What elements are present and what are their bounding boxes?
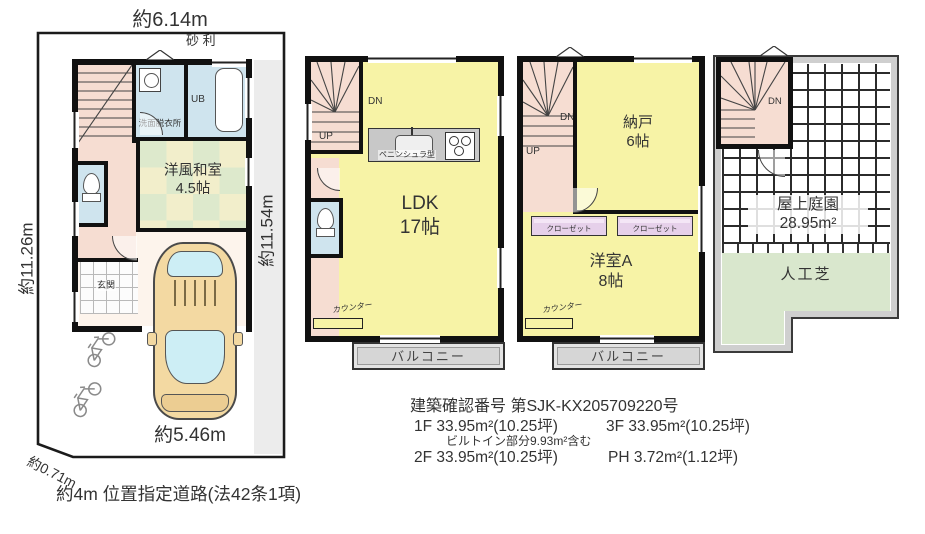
turf-ext — [722, 311, 784, 344]
wall — [339, 198, 343, 258]
tatami-label: 洋風和室 4.5帖 — [140, 162, 246, 198]
stairs-1f-icon — [78, 65, 132, 143]
turf-label: 人工芝 — [756, 266, 856, 285]
dim-left: 約11.26m — [16, 214, 37, 304]
confirmation-number: 建築確認番号 第SJK-KX205709220号 — [410, 397, 679, 417]
roof-garden-name: 屋上庭園 — [748, 195, 868, 214]
ldk-label: LDK 17帖 — [370, 192, 470, 240]
dim-top: 約6.14m — [100, 8, 240, 33]
closet-left-label: クローゼット — [531, 224, 607, 233]
kitchen-type-label: ペニンシュラ型 — [378, 150, 436, 160]
ldk-name: LDK — [370, 192, 470, 216]
room-a-label: 洋室A 8帖 — [561, 252, 661, 292]
burner-icon — [461, 136, 471, 146]
gravel-label: 砂 利 — [186, 33, 216, 49]
toilet-tank-icon — [316, 228, 335, 237]
window — [71, 292, 79, 322]
car-windshield — [165, 330, 225, 384]
closet-shelf — [534, 219, 604, 223]
car-mirror-right-icon — [233, 332, 243, 346]
kitchen-stove-icon — [445, 132, 475, 160]
window — [71, 112, 79, 148]
area-ph: PH 3.72m²(1.12坪) — [608, 448, 738, 467]
car-mirror-left-icon — [147, 332, 157, 346]
storage-label: 納戸 6帖 — [577, 114, 699, 152]
dim-right: 約11.54m — [256, 186, 277, 276]
window — [698, 186, 706, 252]
toilet-tank-icon — [82, 193, 101, 202]
room-a-name: 洋室A — [561, 252, 661, 272]
car — [153, 242, 237, 420]
wall — [311, 254, 343, 258]
window — [368, 55, 456, 63]
road-label: 約4m 位置指定道路(法42条1項) — [56, 484, 301, 506]
stair-room-3f — [523, 62, 573, 158]
counter-strip-2f — [313, 318, 363, 329]
wall — [78, 223, 108, 227]
washer-drum-icon — [144, 73, 159, 88]
window — [634, 55, 692, 63]
builtin-note: ビルトイン部分9.93m²含む — [446, 434, 591, 449]
washer-icon — [139, 68, 161, 92]
balcony-2f: バルコニー — [352, 342, 505, 370]
bath-label: UB — [191, 94, 205, 107]
bathtub-icon — [215, 68, 243, 132]
window — [245, 158, 253, 186]
hall-3f — [523, 158, 573, 212]
up-label-2f: UP — [319, 131, 333, 144]
vent-icon — [556, 47, 584, 57]
area-2f: 2F 33.95m²(10.25坪) — [414, 448, 558, 467]
toilet-room-1f — [78, 165, 104, 223]
closet-right-label: クローゼット — [617, 224, 693, 233]
storage-name: 納戸 — [577, 114, 699, 133]
tatami-name: 洋風和室 — [140, 162, 246, 180]
window — [212, 59, 246, 67]
balcony-3f: バルコニー — [552, 342, 705, 370]
room-a-size: 8帖 — [561, 272, 661, 292]
area-3f: 3F 33.95m²(10.25坪) — [606, 417, 750, 436]
window — [497, 96, 505, 136]
wall — [104, 161, 108, 227]
wall — [136, 141, 140, 232]
dim-bottom: 約5.46m — [130, 424, 250, 448]
toilet-icon — [317, 208, 334, 230]
car-rear-window — [167, 251, 223, 277]
floorplan-canvas: 洗面脱衣所 UB 洋風和室 4.5帖 玄関 — [0, 0, 925, 534]
stair-room-1f — [78, 65, 132, 143]
window — [71, 202, 79, 236]
up-label-3f: UP — [526, 146, 540, 159]
burner-icon — [454, 146, 464, 156]
entrance-label: 玄関 — [96, 280, 116, 291]
dn-label-ph: DN — [768, 96, 782, 108]
tatami-size: 4.5帖 — [140, 180, 246, 198]
window — [380, 335, 440, 343]
balcony-label-2f: バルコニー — [354, 349, 503, 365]
window — [497, 248, 505, 288]
wall — [140, 228, 246, 232]
window — [304, 104, 312, 140]
roof-garden-area: 28.95m² — [748, 214, 868, 233]
car-hood — [161, 394, 229, 412]
deck-ticks — [722, 244, 890, 253]
window — [245, 78, 253, 118]
vent-icon — [146, 50, 174, 60]
toilet-room-2f — [311, 202, 339, 254]
stairs-3f-icon — [523, 62, 573, 158]
kitchen-faucet-icon — [411, 127, 413, 135]
window — [600, 335, 654, 343]
dn-label-2f: DN — [368, 96, 382, 109]
toilet-icon — [83, 173, 100, 195]
roof-garden-label: 屋上庭園 28.95m² — [748, 195, 868, 234]
wall — [577, 210, 699, 214]
vent-icon — [760, 46, 788, 56]
car-roof-lines — [174, 280, 216, 306]
counter-strip-3f — [525, 318, 573, 329]
storage-size: 6帖 — [577, 133, 699, 152]
closet-shelf — [620, 219, 690, 223]
ldk-size: 17帖 — [370, 216, 470, 240]
burner-icon — [449, 136, 459, 146]
balcony-label-3f: バルコニー — [554, 349, 703, 365]
